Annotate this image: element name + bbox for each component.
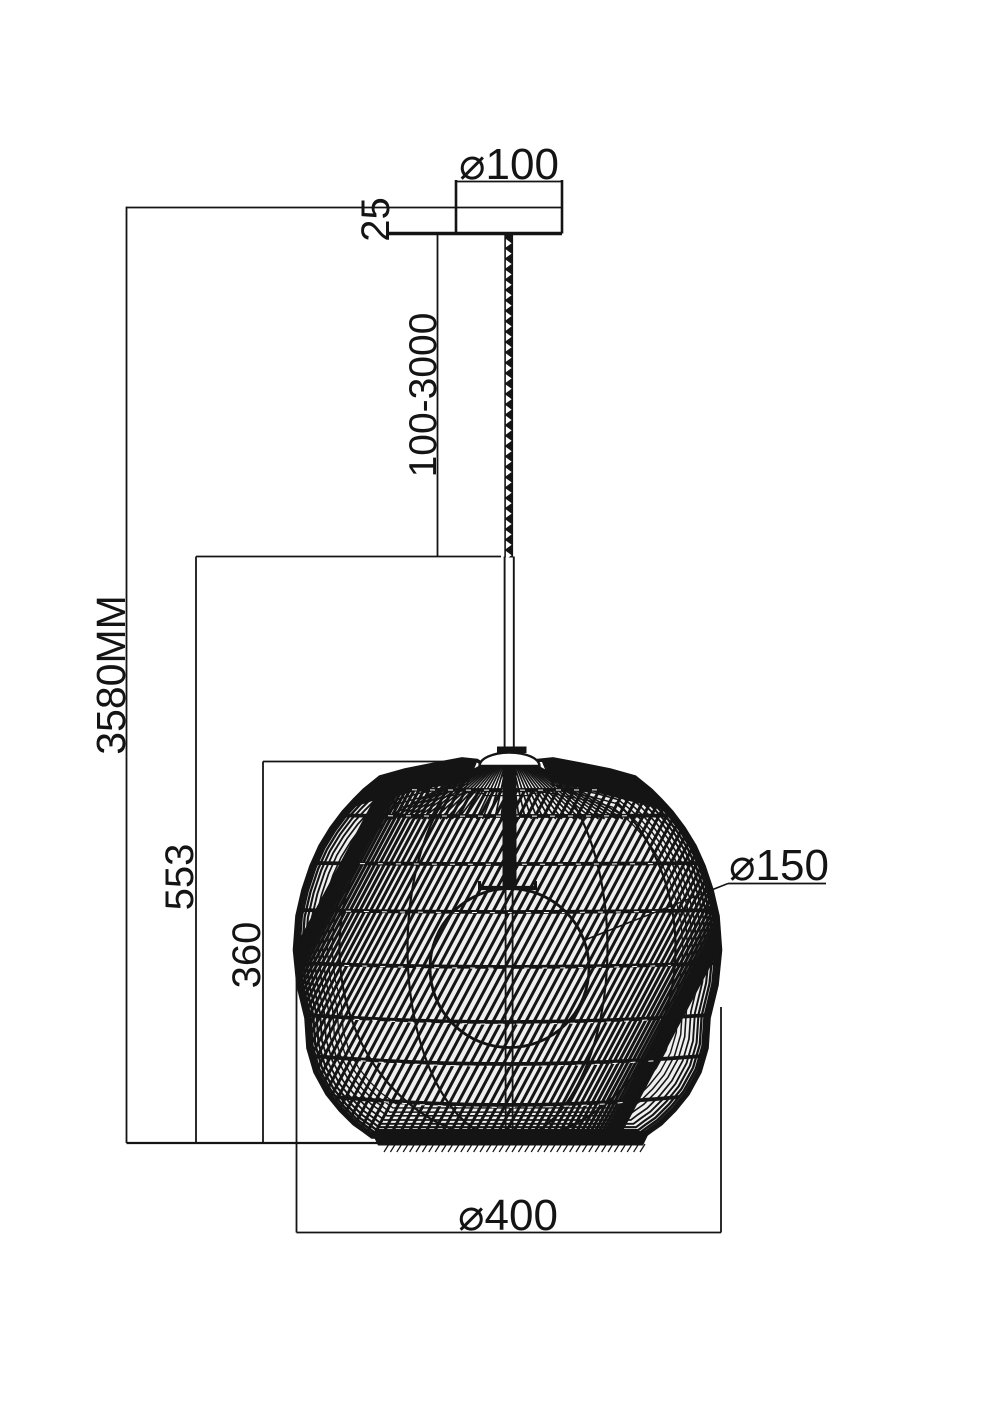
svg-text:3580MM: 3580MM [88, 595, 134, 755]
svg-text:553: 553 [158, 844, 202, 911]
svg-text:100-3000: 100-3000 [402, 313, 445, 478]
svg-text:⌀400: ⌀400 [458, 1191, 558, 1240]
svg-text:⌀100: ⌀100 [459, 140, 559, 189]
svg-text:⌀150: ⌀150 [729, 841, 829, 890]
svg-text:360: 360 [225, 922, 269, 989]
svg-text:25: 25 [354, 197, 398, 242]
